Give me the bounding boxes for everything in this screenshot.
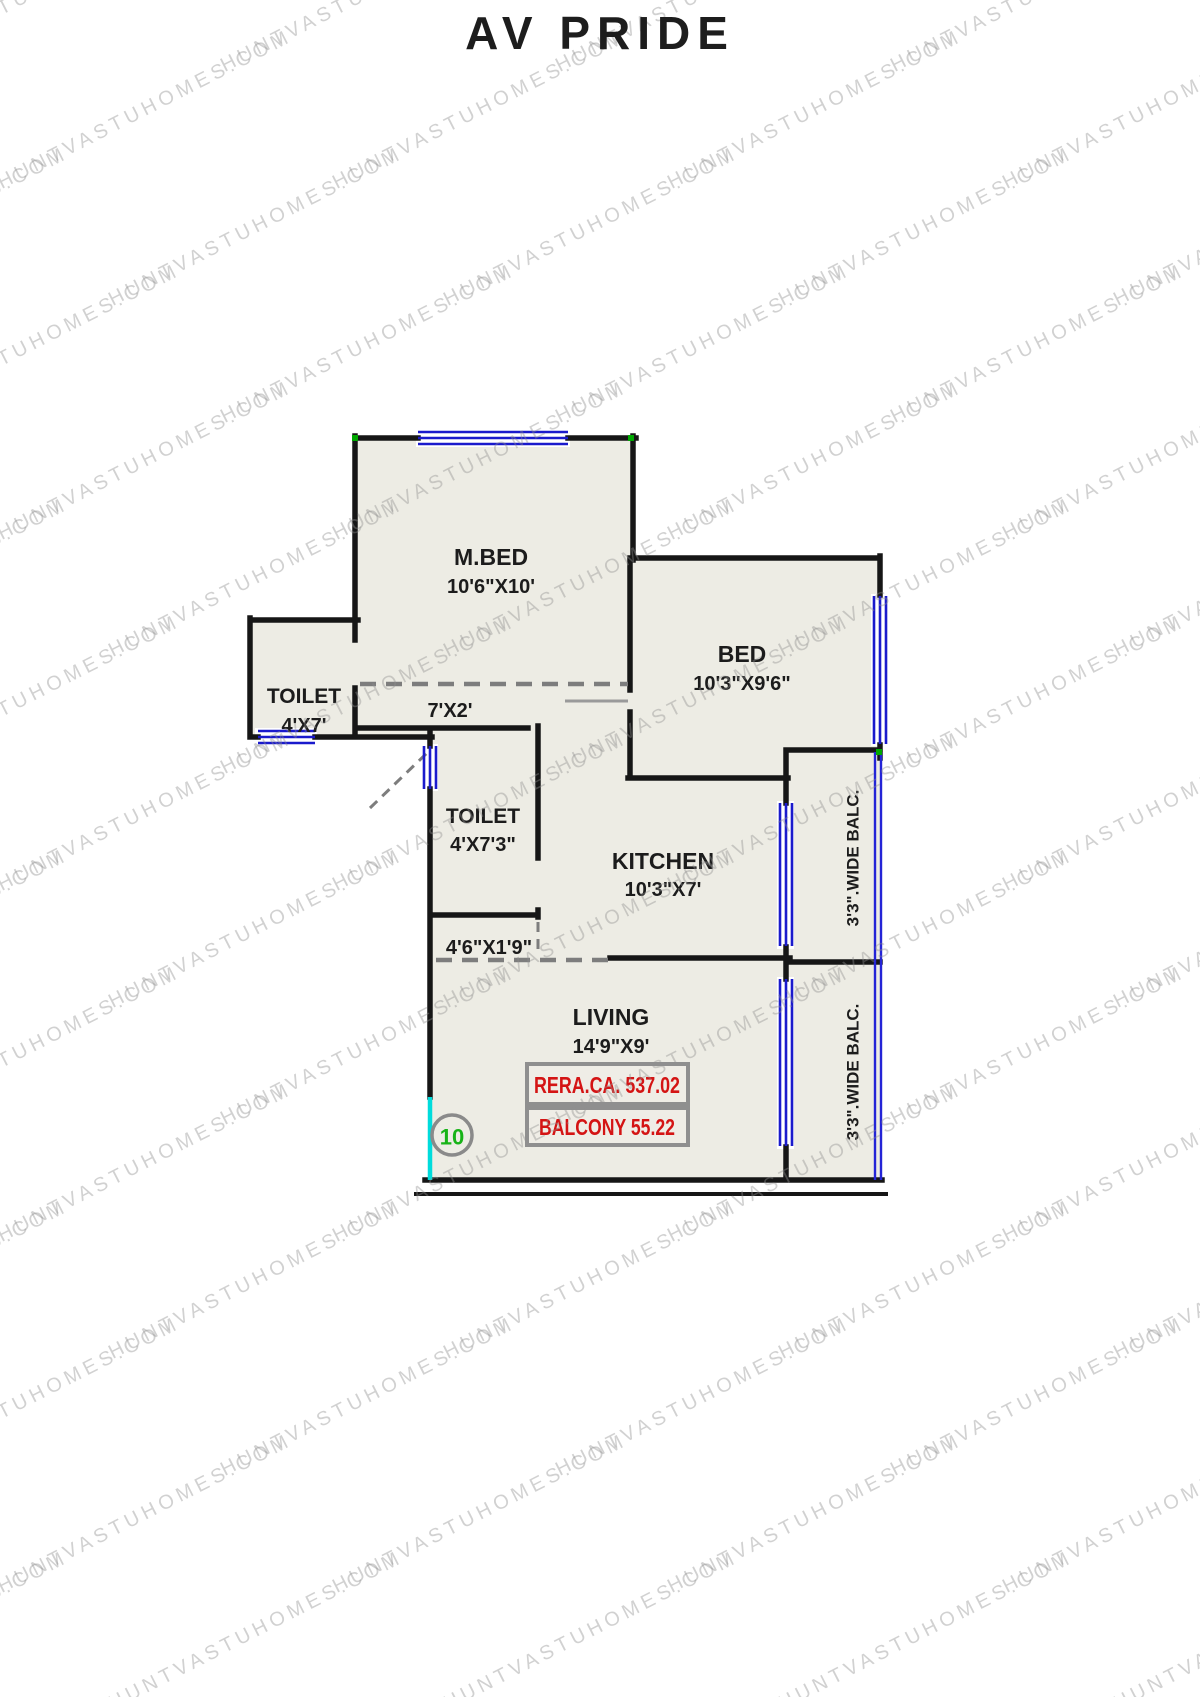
unit-number: 10 [440, 1125, 464, 1150]
room-label-toilet2: TOILET [446, 805, 520, 828]
room-dims-kitchen: 10'3"X7' [625, 879, 702, 901]
floor-plan: M.BED 10'6"X10' BED 10'3"X9'6" TOILET 4'… [0, 0, 1200, 1697]
room-dims-toilet2: 4'X7'3" [450, 834, 516, 856]
room-label-bed: BED [718, 641, 767, 667]
passage-dims-1: 7'X2' [427, 700, 472, 722]
passage-dims-2: 4'6"X1'9" [446, 937, 532, 959]
room-dims-living: 14'9"X9' [573, 1036, 650, 1058]
room-label-mbed: M.BED [454, 544, 528, 570]
info-text-rera: RERA.CA. 537.02 [534, 1072, 680, 1098]
room-dims-bed: 10'3"X9'6" [693, 673, 790, 695]
room-dims-toilet1: 4'X7' [281, 715, 326, 737]
room-label-kitchen: KITCHEN [612, 848, 714, 874]
balcony-label-lower: 3'3".WIDE BALC. [844, 1004, 863, 1141]
room-label-living: LIVING [573, 1004, 650, 1030]
room-label-toilet1: TOILET [267, 685, 341, 708]
page-title: AV PRIDE [0, 6, 1200, 60]
room-dims-mbed: 10'6"X10' [447, 576, 535, 598]
info-boxes: RERA.CA. 537.02 BALCONY 55.22 [527, 1064, 688, 1145]
balcony-label-upper: 3'3".WIDE BALC. [844, 790, 863, 927]
info-text-balcony: BALCONY 55.22 [539, 1114, 675, 1140]
